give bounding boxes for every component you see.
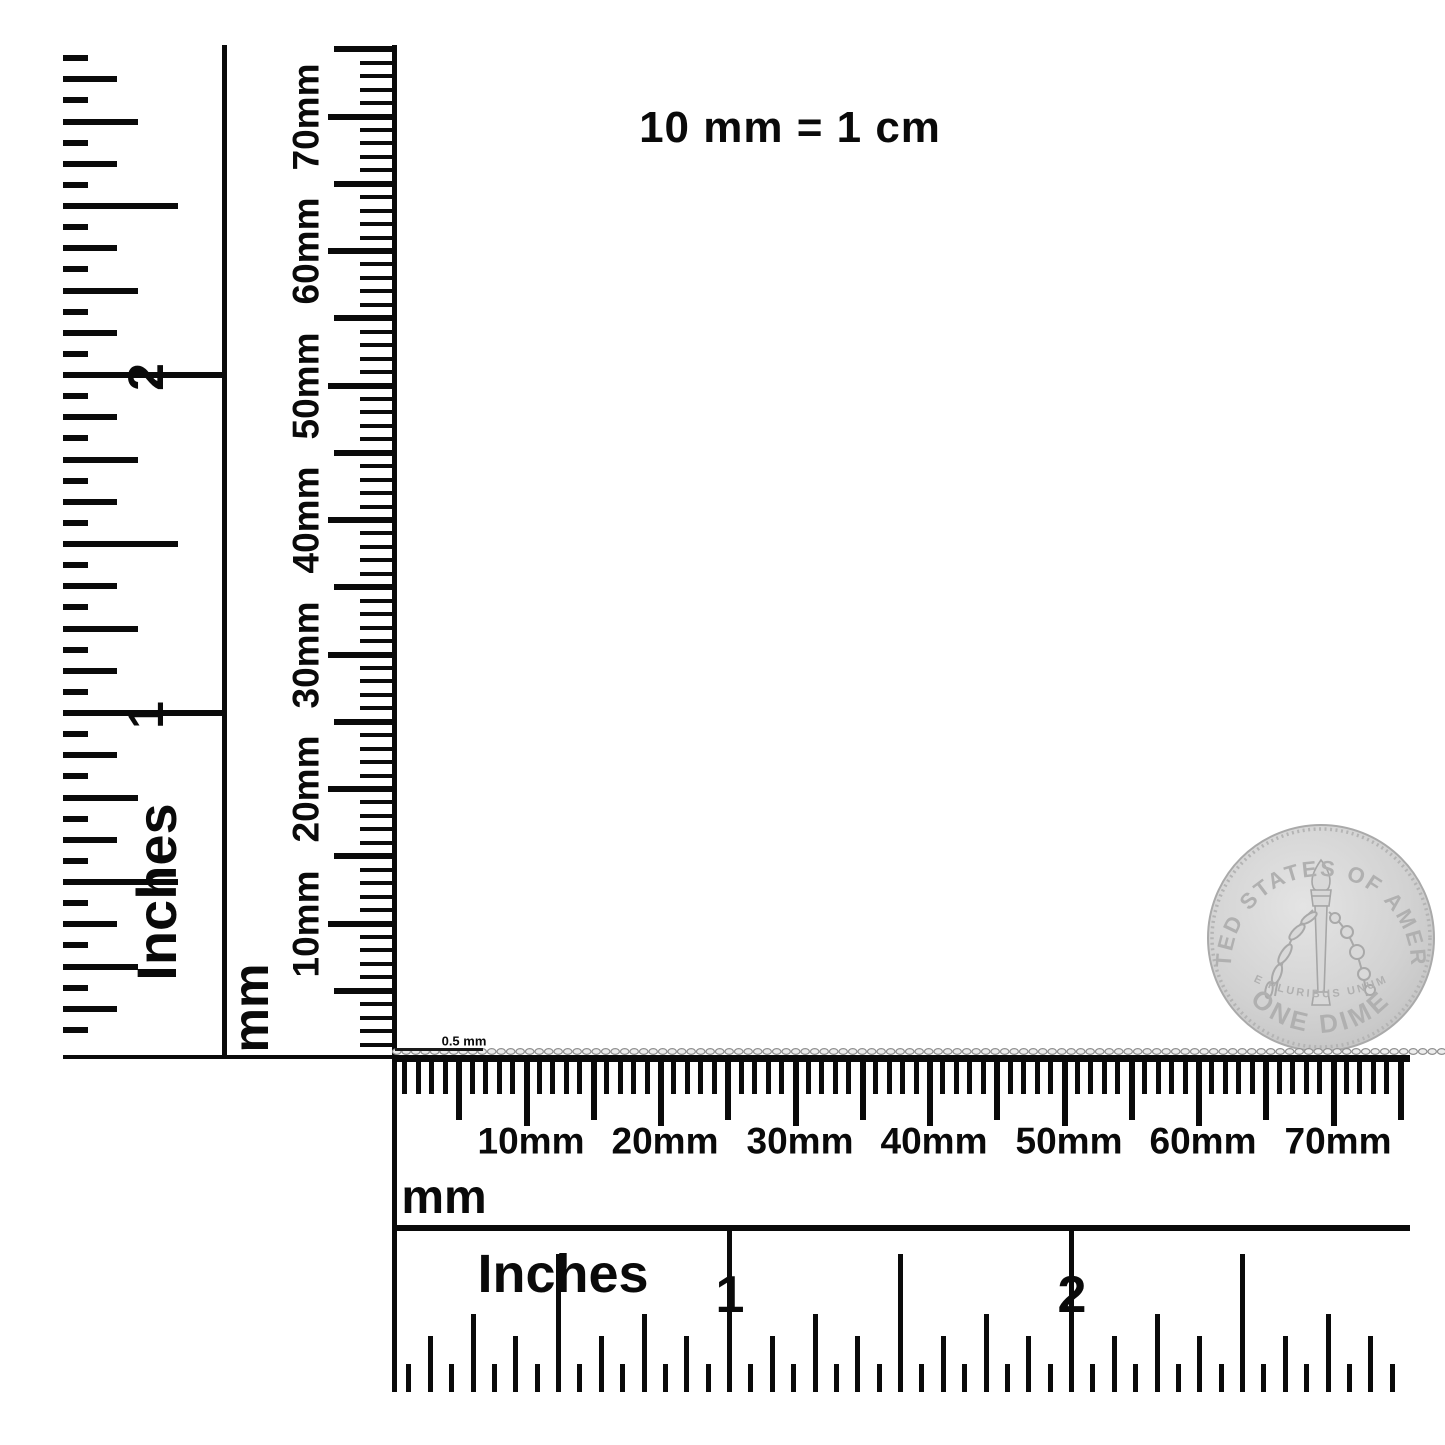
ruler-tick [360, 599, 392, 603]
ruler-tick [663, 1364, 668, 1392]
ruler-tick [1283, 1336, 1288, 1392]
ruler-tick [819, 1062, 824, 1094]
chain-pointer-line [395, 1048, 483, 1051]
ruler-tick [591, 1062, 597, 1120]
ruler-tick [813, 1314, 818, 1392]
ruler-tick [535, 1364, 540, 1392]
ruler-tick [685, 1062, 690, 1094]
ruler-tick [1102, 1062, 1107, 1094]
ruler-tick [360, 410, 392, 414]
ruler-tick [1236, 1062, 1241, 1094]
ruler-tick [63, 668, 117, 674]
ruler-tick [577, 1364, 582, 1392]
ruler-tick [1196, 1062, 1202, 1126]
ruler-tick [334, 450, 392, 456]
chain-width-label: 0.5 mm [442, 1035, 487, 1048]
ruler-tick [63, 288, 138, 294]
ruler-tick [360, 975, 392, 979]
mm-tick-label: 10mm [288, 871, 325, 978]
ruler-tick [752, 1062, 757, 1094]
ruler-tick [360, 1016, 392, 1020]
ruler-tick [360, 881, 392, 885]
mm-tick-label: 60mm [288, 198, 325, 305]
ruler-tick [449, 1364, 454, 1392]
ruler-tick [360, 343, 392, 347]
ruler-tick [1240, 1254, 1245, 1392]
ruler-tick [1263, 1062, 1269, 1120]
ruler-tick [1261, 1364, 1266, 1392]
ruler-tick [328, 786, 392, 792]
ruler-tick [63, 541, 178, 547]
inch-number-label: 2 [1058, 1269, 1087, 1321]
ruler-tick [63, 161, 117, 167]
ruler-tick [941, 1336, 946, 1392]
ruler-tick [898, 1254, 903, 1392]
ruler-tick [984, 1314, 989, 1392]
ruler-tick [63, 647, 88, 653]
ruler-tick [860, 1062, 866, 1120]
ruler-tick [360, 74, 392, 78]
ruler-tick [550, 1062, 555, 1094]
ruler-tick [360, 774, 392, 778]
ruler-tick [537, 1062, 542, 1094]
ruler-tick [360, 141, 392, 145]
ruler-tick [63, 182, 88, 188]
ruler-tick [334, 181, 392, 187]
ruler-tick [642, 1314, 647, 1392]
ruler-tick [1048, 1364, 1053, 1392]
ruler-tick [1155, 1314, 1160, 1392]
ruler-tick [766, 1062, 771, 1094]
ruler-tick [604, 1062, 609, 1094]
ruler-tick [1347, 1364, 1352, 1392]
ruler-tick [1223, 1062, 1228, 1094]
ruler-tick [873, 1062, 878, 1094]
ruler-tick [360, 289, 392, 293]
ruler-tick [360, 706, 392, 710]
ruler-tick [416, 1062, 421, 1094]
ruler-tick [497, 1062, 502, 1094]
ruler-tick [63, 921, 117, 927]
ruler-tick [360, 209, 392, 213]
ruler-tick [940, 1062, 945, 1094]
ruler-tick [779, 1062, 784, 1094]
ruler-tick [63, 140, 88, 146]
ruler-tick [564, 1062, 569, 1094]
ruler-tick [483, 1062, 488, 1094]
ruler-tick [63, 330, 117, 336]
ruler-tick [658, 1062, 664, 1126]
mm-tick-label: 30mm [747, 1123, 854, 1160]
ruler-tick [914, 1062, 919, 1094]
ruler-tick [967, 1062, 972, 1094]
ruler-tick [513, 1336, 518, 1392]
ruler-tick [618, 1062, 623, 1094]
ruler-tick [360, 478, 392, 482]
ruler-tick [1129, 1062, 1135, 1120]
inch-number-label: 1 [121, 701, 171, 729]
ruler-tick [510, 1062, 515, 1094]
ruler-tick [334, 46, 392, 52]
bottom-mm-ruler-top-edge [392, 1055, 1410, 1062]
ruler-tick [428, 1336, 433, 1392]
ruler-tick [360, 424, 392, 428]
ruler-tick [63, 1006, 117, 1012]
ruler-tick [443, 1062, 448, 1094]
mm-tick-label: 40mm [881, 1123, 988, 1160]
ruler-tick [360, 760, 392, 764]
ruler-tick [994, 1062, 1000, 1120]
ruler-tick [725, 1062, 731, 1120]
scale-equivalence-note: 10 mm = 1 cm [639, 106, 941, 150]
ruler-tick [806, 1062, 811, 1094]
mm-tick-label: 70mm [288, 64, 325, 171]
ruler-tick [63, 203, 178, 209]
ruler-tick [63, 351, 88, 357]
ruler-tick [360, 948, 392, 952]
ruler-tick [63, 414, 117, 420]
bottom-mm-unit-label: mm [401, 1174, 486, 1222]
ruler-tick [791, 1364, 796, 1392]
ruler-tick [620, 1364, 625, 1392]
ruler-tick [360, 800, 392, 804]
ruler-tick [877, 1364, 882, 1392]
ruler-tick [328, 517, 392, 523]
ruler-tick [492, 1364, 497, 1392]
ruler-tick [770, 1336, 775, 1392]
ruler-tick [1048, 1062, 1053, 1094]
ruler-tick [63, 858, 88, 864]
ruler-tick [1317, 1062, 1322, 1094]
ruler-tick [334, 988, 392, 994]
ruler-tick [334, 719, 392, 725]
ruler-tick [360, 222, 392, 226]
ruler-tick [360, 330, 392, 334]
ruler-tick [63, 245, 117, 251]
ruler-tick [63, 731, 88, 737]
ruler-tick [360, 128, 392, 132]
ruler-tick [1390, 1364, 1395, 1392]
ruler-tick [577, 1062, 582, 1094]
ruler-tick [1250, 1062, 1255, 1094]
ruler-tick [360, 531, 392, 535]
ruler-tick [63, 393, 88, 399]
ruler-tick [63, 562, 88, 568]
ruler-tick [900, 1062, 905, 1094]
ruler-tick [63, 224, 88, 230]
ruler-tick [63, 1027, 88, 1033]
ruler-tick [471, 1314, 476, 1392]
ruler-tick [631, 1062, 636, 1094]
mm-tick-label: 50mm [288, 333, 325, 440]
ruler-tick [63, 309, 88, 315]
mm-ruler-border-line [392, 45, 397, 1392]
ruler-tick [846, 1062, 851, 1094]
ruler-tick [706, 1364, 711, 1392]
ruler-tick [360, 908, 392, 912]
ruler-tick [1021, 1062, 1026, 1094]
ruler-tick [63, 583, 117, 589]
ruler-tick [954, 1062, 959, 1094]
ruler-tick [402, 1062, 407, 1094]
ruler-tick [360, 693, 392, 697]
ruler-tick [919, 1364, 924, 1392]
ruler-tick [360, 666, 392, 670]
ruler-tick [793, 1062, 799, 1126]
ruler-tick [63, 499, 117, 505]
ruler-tick [1331, 1062, 1337, 1126]
jewelry-measurement-scale-image: 12 10mm20mm30mm40mm50mm60mm70mm 10mm20mm… [0, 0, 1445, 1445]
ruler-tick [887, 1062, 892, 1094]
ruler-tick [63, 773, 88, 779]
ruler-tick [63, 795, 138, 801]
ruler-tick [63, 752, 117, 758]
ruler-tick [645, 1062, 650, 1094]
ruler-tick [63, 520, 88, 526]
ruler-tick [360, 545, 392, 549]
ruler-tick [1156, 1062, 1161, 1094]
ruler-tick [63, 900, 88, 906]
ruler-tick [360, 101, 392, 105]
ruler-tick [1183, 1062, 1188, 1094]
ruler-tick [1384, 1062, 1389, 1094]
ruler-tick [334, 584, 392, 590]
ruler-tick [1371, 1062, 1376, 1094]
ruler-tick [671, 1062, 676, 1094]
ruler-tick [981, 1062, 986, 1094]
ruler-tick [360, 168, 392, 172]
ruler-tick [1133, 1364, 1138, 1392]
ruler-tick [927, 1062, 933, 1126]
ruler-tick [1326, 1314, 1331, 1392]
inch-number-label: 2 [121, 363, 171, 391]
ruler-tick [429, 1062, 434, 1094]
ruler-tick [63, 97, 88, 103]
ruler-tick [1368, 1336, 1373, 1392]
ruler-tick [599, 1336, 604, 1392]
ruler-tick [360, 195, 392, 199]
inches-ruler-border-line [222, 45, 227, 1058]
ruler-tick [1169, 1062, 1174, 1094]
ruler-tick [360, 357, 392, 361]
ruler-tick [334, 853, 392, 859]
mm-tick-label: 20mm [612, 1123, 719, 1160]
ruler-tick [834, 1364, 839, 1392]
ruler-tick [63, 837, 117, 843]
ruler-tick [360, 626, 392, 630]
ruler-tick [1062, 1062, 1068, 1126]
ruler-tick [1090, 1364, 1095, 1392]
mm-tick-label: 40mm [288, 467, 325, 574]
ruler-tick [1357, 1062, 1362, 1094]
ruler-tick [962, 1364, 967, 1392]
bottom-rulers-divider [392, 1225, 1410, 1231]
ruler-tick [1277, 1062, 1282, 1094]
ruler-tick [360, 895, 392, 899]
left-mm-unit-label: mm [226, 964, 276, 1053]
inch-number-label: 1 [716, 1269, 745, 1321]
ruler-tick [328, 652, 392, 658]
ruler-tick [1344, 1062, 1349, 1094]
ruler-tick [1035, 1062, 1040, 1094]
ruler-tick [360, 370, 392, 374]
ruler-tick [360, 814, 392, 818]
ruler-tick [360, 464, 392, 468]
ruler-tick [1112, 1336, 1117, 1392]
ruler-tick [524, 1062, 530, 1126]
ruler-tick [1008, 1062, 1013, 1094]
ruler-tick [360, 437, 392, 441]
ruler-tick [360, 935, 392, 939]
ruler-tick [470, 1062, 475, 1094]
ruler-tick [1209, 1062, 1214, 1094]
left-rulers-baseline [63, 1055, 392, 1059]
ruler-tick [1219, 1364, 1224, 1392]
ruler-tick [360, 1002, 392, 1006]
cable-chain [392, 1047, 1445, 1056]
ruler-tick [833, 1062, 838, 1094]
ruler-tick [360, 572, 392, 576]
mm-tick-label: 70mm [1285, 1123, 1392, 1160]
dime-coin: UNITED STATES OF AMERICA E PLURIBUS UNUM… [1205, 822, 1437, 1054]
ruler-tick [328, 921, 392, 927]
ruler-tick [63, 689, 88, 695]
ruler-tick [360, 236, 392, 240]
ruler-tick [1142, 1062, 1147, 1094]
bottom-inches-unit-label: Inches [477, 1247, 648, 1301]
ruler-tick [360, 827, 392, 831]
ruler-tick [328, 383, 392, 389]
ruler-tick [360, 1029, 392, 1033]
ruler-tick [1290, 1062, 1295, 1094]
ruler-tick [360, 1043, 392, 1047]
ruler-tick [63, 604, 88, 610]
ruler-tick [63, 985, 88, 991]
ruler-tick [63, 55, 88, 61]
ruler-tick [698, 1062, 703, 1094]
ruler-tick [712, 1062, 717, 1094]
ruler-tick [63, 266, 88, 272]
ruler-tick [360, 491, 392, 495]
ruler-tick [360, 505, 392, 509]
ruler-tick [739, 1062, 744, 1094]
ruler-tick [63, 435, 88, 441]
ruler-tick [360, 639, 392, 643]
ruler-tick [684, 1336, 689, 1392]
ruler-tick [334, 315, 392, 321]
ruler-tick [360, 558, 392, 562]
ruler-tick [63, 942, 88, 948]
ruler-tick [360, 679, 392, 683]
ruler-tick [328, 248, 392, 254]
mm-tick-label: 20mm [288, 736, 325, 843]
left-inches-unit-label: Inches [129, 803, 185, 980]
ruler-tick [63, 816, 88, 822]
ruler-tick [63, 76, 117, 82]
ruler-tick [360, 88, 392, 92]
ruler-tick [1088, 1062, 1093, 1094]
ruler-tick [360, 397, 392, 401]
ruler-tick [360, 841, 392, 845]
mm-tick-label: 30mm [288, 602, 325, 709]
ruler-tick [360, 61, 392, 65]
ruler-tick [456, 1062, 462, 1120]
ruler-tick [63, 119, 138, 125]
mm-tick-label: 50mm [1016, 1123, 1123, 1160]
ruler-tick [360, 155, 392, 159]
ruler-tick [748, 1364, 753, 1392]
ruler-tick [360, 962, 392, 966]
ruler-tick [855, 1336, 860, 1392]
ruler-tick [63, 457, 138, 463]
ruler-tick [360, 747, 392, 751]
ruler-tick [360, 262, 392, 266]
ruler-tick [360, 733, 392, 737]
ruler-tick [1115, 1062, 1120, 1094]
ruler-tick [360, 276, 392, 280]
ruler-tick [360, 612, 392, 616]
mm-tick-label: 60mm [1150, 1123, 1257, 1160]
ruler-tick [1304, 1062, 1309, 1094]
ruler-tick [63, 626, 138, 632]
ruler-tick [1005, 1364, 1010, 1392]
ruler-tick [360, 303, 392, 307]
mm-tick-label: 10mm [478, 1123, 585, 1160]
ruler-tick [1398, 1062, 1404, 1120]
ruler-tick [328, 114, 392, 120]
ruler-tick [1075, 1062, 1080, 1094]
ruler-tick [1176, 1364, 1181, 1392]
ruler-tick [1197, 1336, 1202, 1392]
ruler-tick [1304, 1364, 1309, 1392]
ruler-tick [360, 868, 392, 872]
ruler-tick [63, 478, 88, 484]
ruler-tick [406, 1364, 411, 1392]
ruler-tick [1026, 1336, 1031, 1392]
